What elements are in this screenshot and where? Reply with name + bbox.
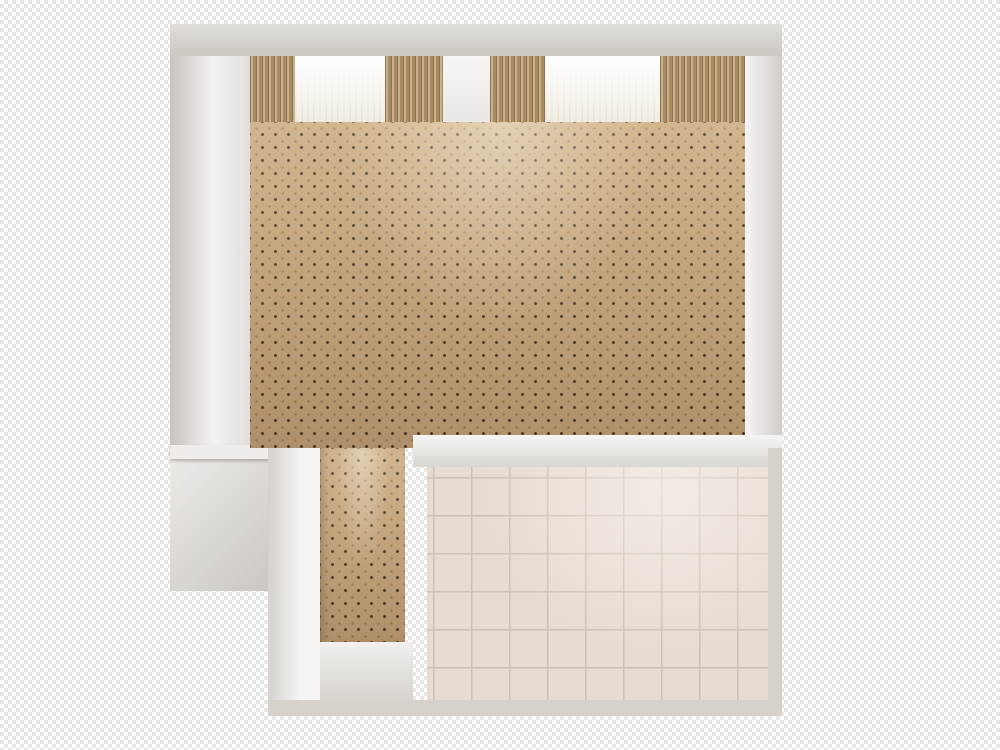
pleated-curtain <box>250 56 295 124</box>
wall-corridor-left <box>268 445 320 716</box>
carpet-corridor <box>320 448 405 642</box>
wall-bottom <box>268 700 782 716</box>
window-bay-wall <box>443 56 490 124</box>
pleated-curtain <box>490 56 545 124</box>
wall-block-lower-left <box>170 445 280 591</box>
wall-left <box>170 56 250 448</box>
wall-bath-right <box>768 448 782 716</box>
pleated-curtain <box>660 56 745 124</box>
carpet-main-room <box>250 122 745 448</box>
floor-plan-render <box>0 0 1000 750</box>
wall-right <box>745 56 782 448</box>
pleated-curtain <box>385 56 443 124</box>
entry-floor <box>320 642 413 700</box>
sheer-drape <box>295 56 385 124</box>
desk-lamp <box>0 0 31 31</box>
sheer-drape <box>545 56 660 124</box>
window-curtain-band <box>250 56 745 124</box>
wall-top <box>170 24 782 58</box>
bathroom-tile-floor <box>427 467 768 702</box>
tv-counter-halfwall <box>413 435 782 467</box>
